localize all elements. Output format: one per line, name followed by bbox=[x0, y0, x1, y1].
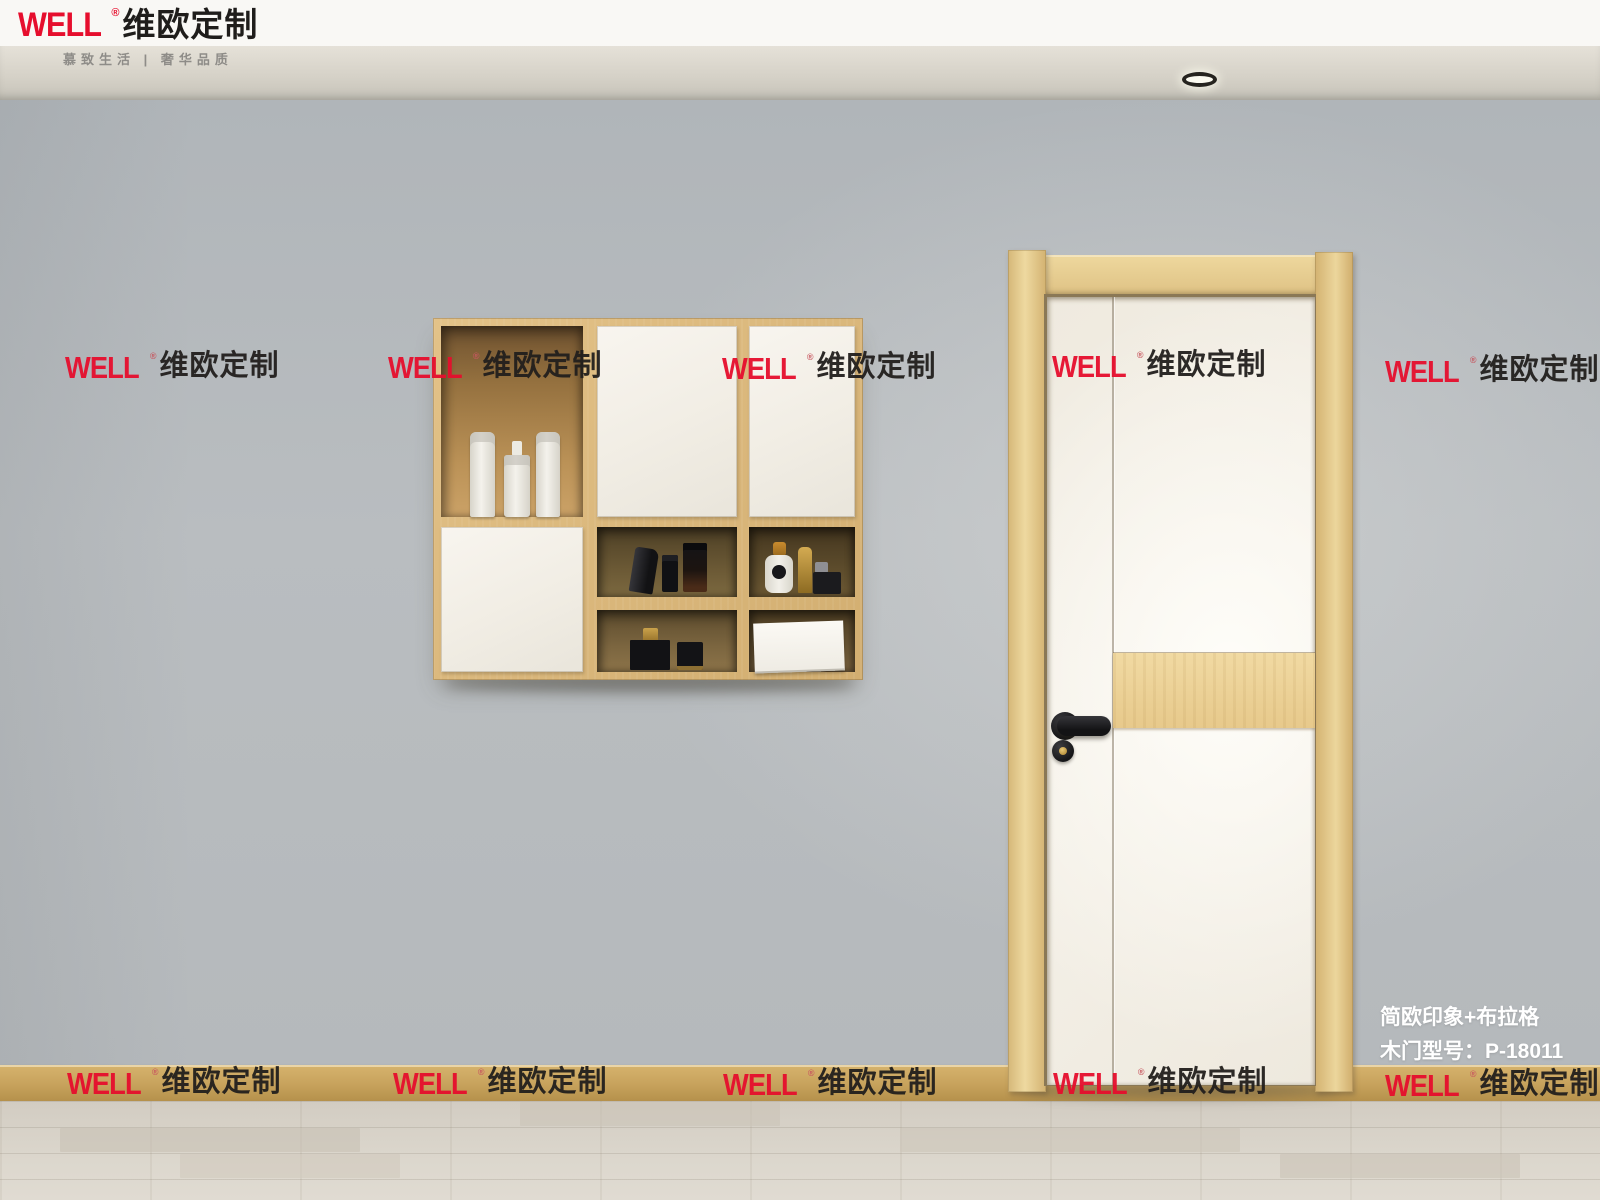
registered-mark-icon: ® bbox=[152, 1068, 159, 1077]
registered-mark-icon: ® bbox=[807, 353, 814, 362]
ceiling bbox=[0, 46, 1600, 100]
watermark-chinese: 维欧定制 bbox=[487, 1068, 607, 1097]
brand-watermark: WELL ® 维欧定制 bbox=[1053, 1068, 1267, 1099]
watermark-chinese: 维欧定制 bbox=[482, 352, 602, 381]
registered-mark-icon: ® bbox=[808, 1069, 815, 1078]
white-box-lid bbox=[753, 620, 845, 673]
door-handle bbox=[1057, 716, 1111, 736]
watermark-chinese: 维欧定制 bbox=[1147, 1068, 1267, 1097]
registered-mark-icon: ® bbox=[1470, 1070, 1477, 1079]
door-keyhole bbox=[1059, 747, 1067, 755]
black-bottle bbox=[662, 555, 678, 592]
watermark-chinese: 维欧定制 bbox=[1146, 351, 1266, 380]
floor-plank bbox=[900, 1128, 1240, 1152]
brand-logo-chinese: 维欧定制 bbox=[122, 8, 258, 41]
watermark-chinese: 维欧定制 bbox=[159, 352, 279, 381]
brand-watermark: WELL ® 维欧定制 bbox=[1385, 356, 1599, 387]
registered-mark-icon: ® bbox=[473, 352, 480, 361]
wood-floor bbox=[0, 1101, 1600, 1200]
brand-watermark: WELL ® 维欧定制 bbox=[65, 352, 279, 383]
watermark-well: WELL bbox=[1385, 356, 1459, 387]
brand-watermark: WELL ® 维欧定制 bbox=[722, 353, 936, 384]
white-bottle bbox=[536, 432, 560, 517]
brand-watermark: WELL ® 维欧定制 bbox=[1052, 351, 1266, 382]
cabinet-door-bottom-left bbox=[441, 527, 583, 672]
registered-mark-icon: ® bbox=[478, 1068, 485, 1077]
brand-watermark: WELL ® 维欧定制 bbox=[67, 1068, 281, 1099]
watermark-well: WELL bbox=[1053, 1068, 1127, 1099]
watermark-well: WELL bbox=[723, 1069, 797, 1100]
product-info: 简欧印象+布拉格 木门型号：P-18011 bbox=[1380, 1001, 1563, 1069]
door-frame-right-post bbox=[1315, 252, 1353, 1092]
brand-watermark: WELL ® 维欧定制 bbox=[723, 1069, 937, 1100]
watermark-well: WELL bbox=[65, 352, 139, 383]
brand-logo: WELL ® 维欧定制 bbox=[18, 8, 258, 42]
registered-mark-icon: ® bbox=[1470, 356, 1477, 365]
watermark-chinese: 维欧定制 bbox=[1479, 356, 1599, 385]
watermark-well: WELL bbox=[1385, 1070, 1459, 1101]
brand-watermark: WELL ® 维欧定制 bbox=[393, 1068, 607, 1099]
watermark-well: WELL bbox=[388, 352, 462, 383]
watermark-chinese: 维欧定制 bbox=[816, 353, 936, 382]
amber-perfume-bottle bbox=[683, 543, 707, 592]
floor-plank bbox=[520, 1102, 780, 1126]
brand-tagline: 慕致生活 | 奢华品质 bbox=[63, 49, 233, 68]
showroom-scene: WELL ® 维欧定制 慕致生活 | 奢华品质 WELL ® 维欧定制 WELL… bbox=[0, 0, 1600, 1200]
floor-plank bbox=[180, 1154, 400, 1178]
black-square-bottle bbox=[630, 640, 670, 670]
recessed-downlight bbox=[1182, 72, 1217, 87]
door-frame-top-beam bbox=[1008, 255, 1353, 297]
product-series: 简欧印象+布拉格 bbox=[1380, 1001, 1563, 1035]
floor-plank bbox=[1280, 1154, 1520, 1178]
registered-mark-icon: ® bbox=[150, 352, 157, 361]
gold-perfume-bottle bbox=[798, 547, 812, 593]
lotion-bottle-label bbox=[772, 565, 786, 579]
registered-mark-icon: ® bbox=[111, 8, 119, 19]
white-bottle bbox=[504, 455, 530, 517]
watermark-chinese: 维欧定制 bbox=[161, 1068, 281, 1097]
black-flask bbox=[813, 572, 841, 594]
white-bottle bbox=[470, 432, 495, 517]
watermark-well: WELL bbox=[393, 1068, 467, 1099]
watermark-chinese: 维欧定制 bbox=[817, 1069, 937, 1098]
door-wood-band bbox=[1113, 653, 1315, 728]
black-mini-bottle bbox=[677, 642, 703, 670]
product-model: 木门型号：P-18011 bbox=[1380, 1035, 1563, 1069]
registered-mark-icon: ® bbox=[1138, 1068, 1145, 1077]
white-bottle-neck bbox=[512, 441, 522, 456]
cabinet-door-top-middle bbox=[597, 326, 737, 517]
registered-mark-icon: ® bbox=[1137, 351, 1144, 360]
watermark-well: WELL bbox=[1052, 351, 1126, 382]
brand-watermark: WELL ® 维欧定制 bbox=[1385, 1070, 1599, 1101]
white-lotion-bottle-cap bbox=[773, 542, 786, 556]
brand-watermark: WELL ® 维欧定制 bbox=[388, 352, 602, 383]
brand-logo-well: WELL bbox=[18, 8, 101, 42]
door-frame-left-post bbox=[1008, 250, 1046, 1092]
watermark-well: WELL bbox=[67, 1068, 141, 1099]
floor-plank bbox=[60, 1128, 360, 1152]
watermark-well: WELL bbox=[722, 353, 796, 384]
watermark-chinese: 维欧定制 bbox=[1479, 1070, 1599, 1099]
